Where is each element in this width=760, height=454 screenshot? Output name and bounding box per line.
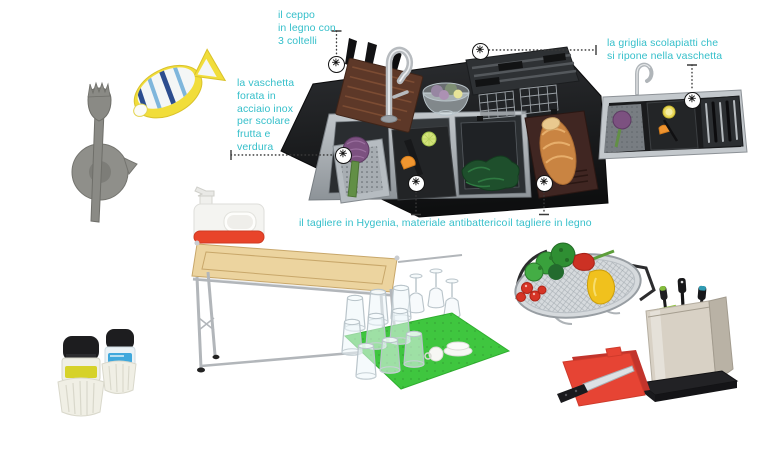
asterisk-marker-hygenia: ✳ [408,175,425,192]
over-sink-colander [512,243,654,324]
label-griglia: la griglia scolapiatti che si ripone nel… [607,37,722,63]
index-chopping-board-set [640,278,737,402]
collage-canvas: il ceppo in legno con 3 coltelli la vasc… [0,0,760,454]
asterisk-marker-legno: ✳ [536,175,553,192]
palm-brush-yellow [58,336,104,416]
compact-sink [599,65,747,159]
wine-glasses [408,269,460,318]
hygenia-cutting-board [392,126,456,200]
label-ceppo: il ceppo in legno con 3 coltelli [278,9,336,47]
fish-sponge [120,42,228,130]
palm-brush-blue [102,329,136,394]
label-tagliere-legno: il tagliere in legno [508,217,592,230]
sink-caddy-dispenser [194,187,264,243]
label-vaschetta: la vaschetta forata in acciaio inox per … [237,77,294,154]
asterisk-marker-ceppo: ✳ [328,56,345,73]
suction-dish-brush [72,83,137,222]
red-cutting-board [557,347,650,406]
label-tagliere-hygenia: il tagliere in Hygenia, materiale antiba… [299,217,507,230]
asterisk-marker-vaschetta: ✳ [335,147,352,164]
asterisk-marker-griglia-rack: ✳ [472,43,489,60]
asterisk-marker-griglia-sink: ✳ [684,92,701,109]
